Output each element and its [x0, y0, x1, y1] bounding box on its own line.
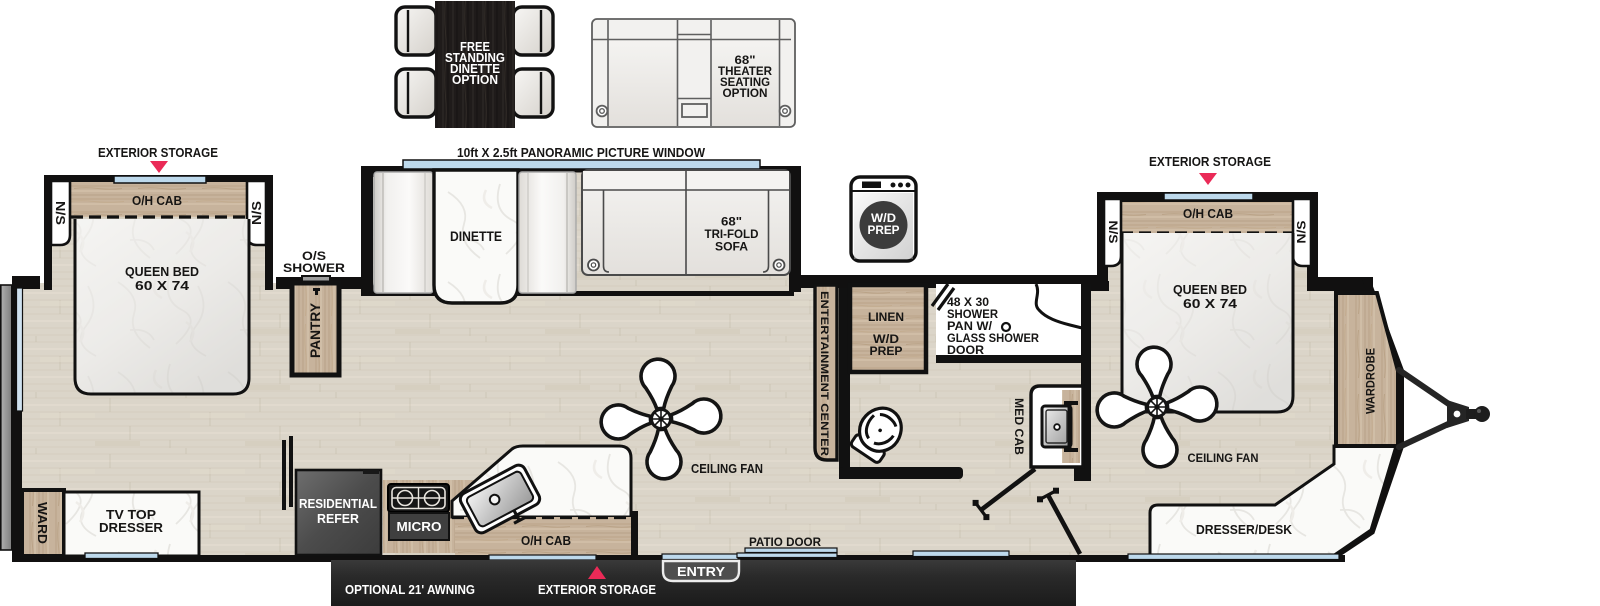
svg-text:N/S: N/S — [1295, 221, 1309, 244]
svg-text:QUEEN BED: QUEEN BED — [1173, 283, 1247, 297]
svg-text:WARDROBE: WARDROBE — [1366, 348, 1378, 414]
svg-text:EXTERIOR STORAGE: EXTERIOR STORAGE — [1149, 154, 1271, 169]
svg-text:PATIO DOOR: PATIO DOOR — [749, 535, 821, 549]
svg-text:60 X 74: 60 X 74 — [1183, 297, 1237, 311]
svg-text:DRESSER/DESK: DRESSER/DESK — [1196, 522, 1293, 537]
svg-text:N/S: N/S — [1106, 221, 1120, 244]
svg-text:OPTION: OPTION — [452, 73, 498, 87]
svg-text:60 X 74: 60 X 74 — [135, 279, 189, 293]
svg-text:W/D: W/D — [871, 213, 896, 225]
svg-text:DINETTE: DINETTE — [450, 229, 502, 244]
svg-text:N/S: N/S — [53, 201, 67, 225]
svg-text:O/H CAB: O/H CAB — [521, 534, 571, 548]
svg-text:EXTERIOR STORAGE: EXTERIOR STORAGE — [98, 145, 218, 160]
svg-text:MED CAB: MED CAB — [1012, 398, 1024, 455]
svg-text:W/D: W/D — [873, 334, 899, 346]
svg-text:10ft X 2.5ft PANORAMIC PICTURE: 10ft X 2.5ft PANORAMIC PICTURE WINDOW — [457, 145, 706, 160]
svg-text:PREP: PREP — [870, 346, 903, 358]
svg-text:48 X 30: 48 X 30 — [947, 297, 989, 309]
svg-text:DOOR: DOOR — [947, 345, 985, 357]
svg-text:RESIDENTIAL: RESIDENTIAL — [299, 497, 377, 511]
svg-text:DRESSER: DRESSER — [99, 521, 163, 535]
svg-text:O/H CAB: O/H CAB — [1183, 207, 1233, 221]
svg-text:SOFA: SOFA — [715, 240, 748, 254]
svg-text:PANTRY: PANTRY — [307, 302, 323, 358]
svg-text:OPTIONAL 21' AWNING: OPTIONAL 21' AWNING — [345, 582, 475, 597]
svg-text:OPTION: OPTION — [723, 86, 768, 100]
svg-text:CEILING FAN: CEILING FAN — [691, 462, 763, 476]
svg-text:MICRO: MICRO — [397, 520, 442, 534]
svg-text:ENTRY: ENTRY — [677, 565, 726, 579]
svg-text:SHOWER: SHOWER — [283, 261, 345, 275]
svg-text:GLASS SHOWER: GLASS SHOWER — [947, 333, 1040, 345]
svg-text:TV TOP: TV TOP — [106, 508, 156, 522]
svg-text:WARD: WARD — [35, 502, 49, 544]
svg-text:O/H CAB: O/H CAB — [132, 194, 182, 208]
svg-text:EXTERIOR STORAGE: EXTERIOR STORAGE — [538, 582, 656, 597]
svg-text:PREP: PREP — [868, 225, 900, 237]
svg-text:ENTERTAINMENT CENTER: ENTERTAINMENT CENTER — [818, 291, 830, 456]
svg-text:CEILING FAN: CEILING FAN — [1188, 453, 1259, 465]
svg-text:PAN W/: PAN W/ — [947, 321, 993, 333]
svg-text:LINEN: LINEN — [868, 312, 904, 324]
svg-text:QUEEN BED: QUEEN BED — [125, 265, 199, 279]
svg-text:SHOWER: SHOWER — [947, 309, 999, 321]
svg-text:REFER: REFER — [317, 512, 359, 526]
svg-text:N/S: N/S — [250, 201, 264, 225]
